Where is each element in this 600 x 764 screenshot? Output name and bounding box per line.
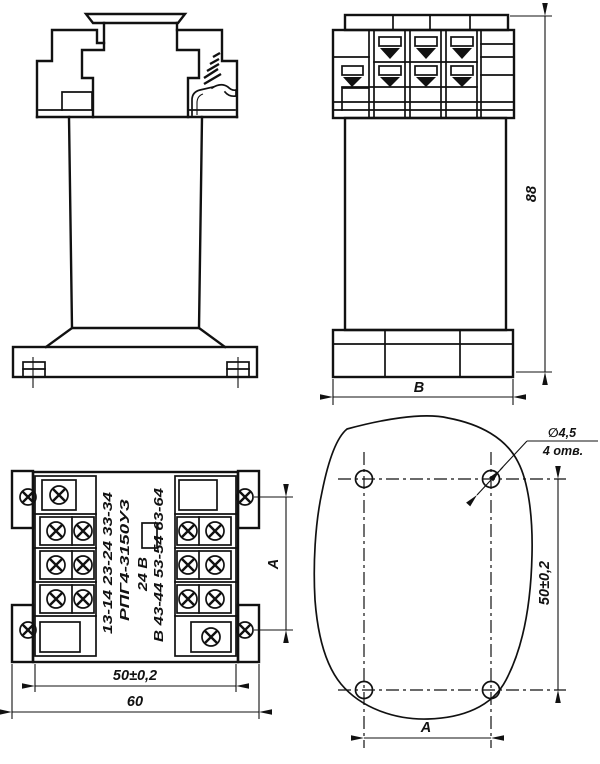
dim-template-50-value: 50±0,2 [537, 561, 553, 605]
side-view: 88 В [333, 15, 552, 405]
front-top-cap [86, 14, 185, 23]
screw-terminal-icon [379, 66, 401, 87]
drawing-page: 88 В [0, 0, 600, 764]
relay-type-label: РПГ4-3150УЗ [117, 498, 132, 621]
hole-centerlines [338, 452, 566, 748]
screw-terminal-icons-top-row [379, 37, 473, 59]
screw-terminal-icon [415, 37, 437, 59]
screw-head-icon [47, 556, 65, 574]
screw-head-icon [179, 522, 197, 540]
front-view [13, 14, 257, 388]
front-flare-left [46, 328, 72, 347]
screw-terminal-icon [415, 66, 437, 87]
front-foot-left [23, 357, 45, 388]
side-head-dividers [369, 30, 481, 118]
dim-50-value: 50±0,2 [113, 668, 157, 684]
screw-head-icon [206, 590, 224, 608]
contacts-right-label: В 43-44 53-54 63-64 [151, 487, 166, 642]
screw-terminal-icon [451, 66, 473, 87]
side-cap [345, 15, 508, 30]
screw-head-icon [202, 628, 220, 646]
voltage-label: 24 В [135, 557, 150, 592]
screw-head-icon [179, 556, 197, 574]
screw-head-icon [179, 590, 197, 608]
screw-head-icon [237, 622, 253, 638]
dim-width-value: В [414, 380, 424, 396]
screw-head-icon [74, 590, 92, 608]
dim-50: 50±0,2 [35, 664, 236, 692]
front-base [13, 347, 257, 377]
screw-terminal-icon [451, 37, 473, 59]
front-head-right [177, 30, 237, 117]
side-base [333, 330, 513, 377]
mounting-template-view: ∅4,5 4 отв. 50±0,2 А [314, 416, 598, 748]
screw-head-icon [74, 556, 92, 574]
screw-head-icon [74, 522, 92, 540]
dim-60-value: 60 [127, 694, 143, 710]
terminal-block-right [175, 476, 236, 656]
dim-height-value: 88 [524, 185, 540, 202]
screw-head-icon [47, 522, 65, 540]
screw-terminal-icons-second-row [342, 66, 473, 87]
screw-head-icon [50, 486, 68, 504]
side-body [345, 118, 506, 330]
dim-template-a: А [364, 720, 491, 738]
front-tower-right [177, 23, 199, 117]
screw-terminal-icon [342, 66, 363, 87]
screw-head-icon [237, 489, 253, 505]
hole-diameter-label: ∅4,5 [548, 426, 577, 440]
dim-width-b: В [333, 379, 513, 405]
dim-template-a-value: А [420, 720, 431, 736]
dim-height-88: 88 [510, 16, 552, 372]
relay-technical-drawing: 88 В [0, 0, 600, 764]
front-foot-right [227, 357, 249, 388]
template-outline [314, 416, 532, 719]
front-tower-left [82, 23, 104, 117]
front-flare-right [199, 328, 225, 347]
screw-head-icon [206, 556, 224, 574]
nameplate-labels: 13-14 23-24 33-34 РПГ4-3150УЗ 24 В В 43-… [100, 487, 166, 642]
screw-terminal-icon [379, 37, 401, 59]
bottom-view: 13-14 23-24 33-34 РПГ4-3150УЗ 24 В В 43-… [12, 471, 293, 719]
terminal-block-left [35, 476, 96, 656]
screw-head-icon [47, 590, 65, 608]
contacts-left-label: 13-14 23-24 33-34 [100, 491, 115, 634]
side-cap-dividers [393, 15, 470, 30]
front-body [69, 117, 202, 328]
dim-template-50: 50±0,2 [537, 479, 558, 690]
screw-head-icon [206, 522, 224, 540]
front-inner-box [62, 92, 92, 110]
dim-a-value: А [266, 559, 282, 570]
hole-count-label: 4 отв. [542, 444, 583, 458]
